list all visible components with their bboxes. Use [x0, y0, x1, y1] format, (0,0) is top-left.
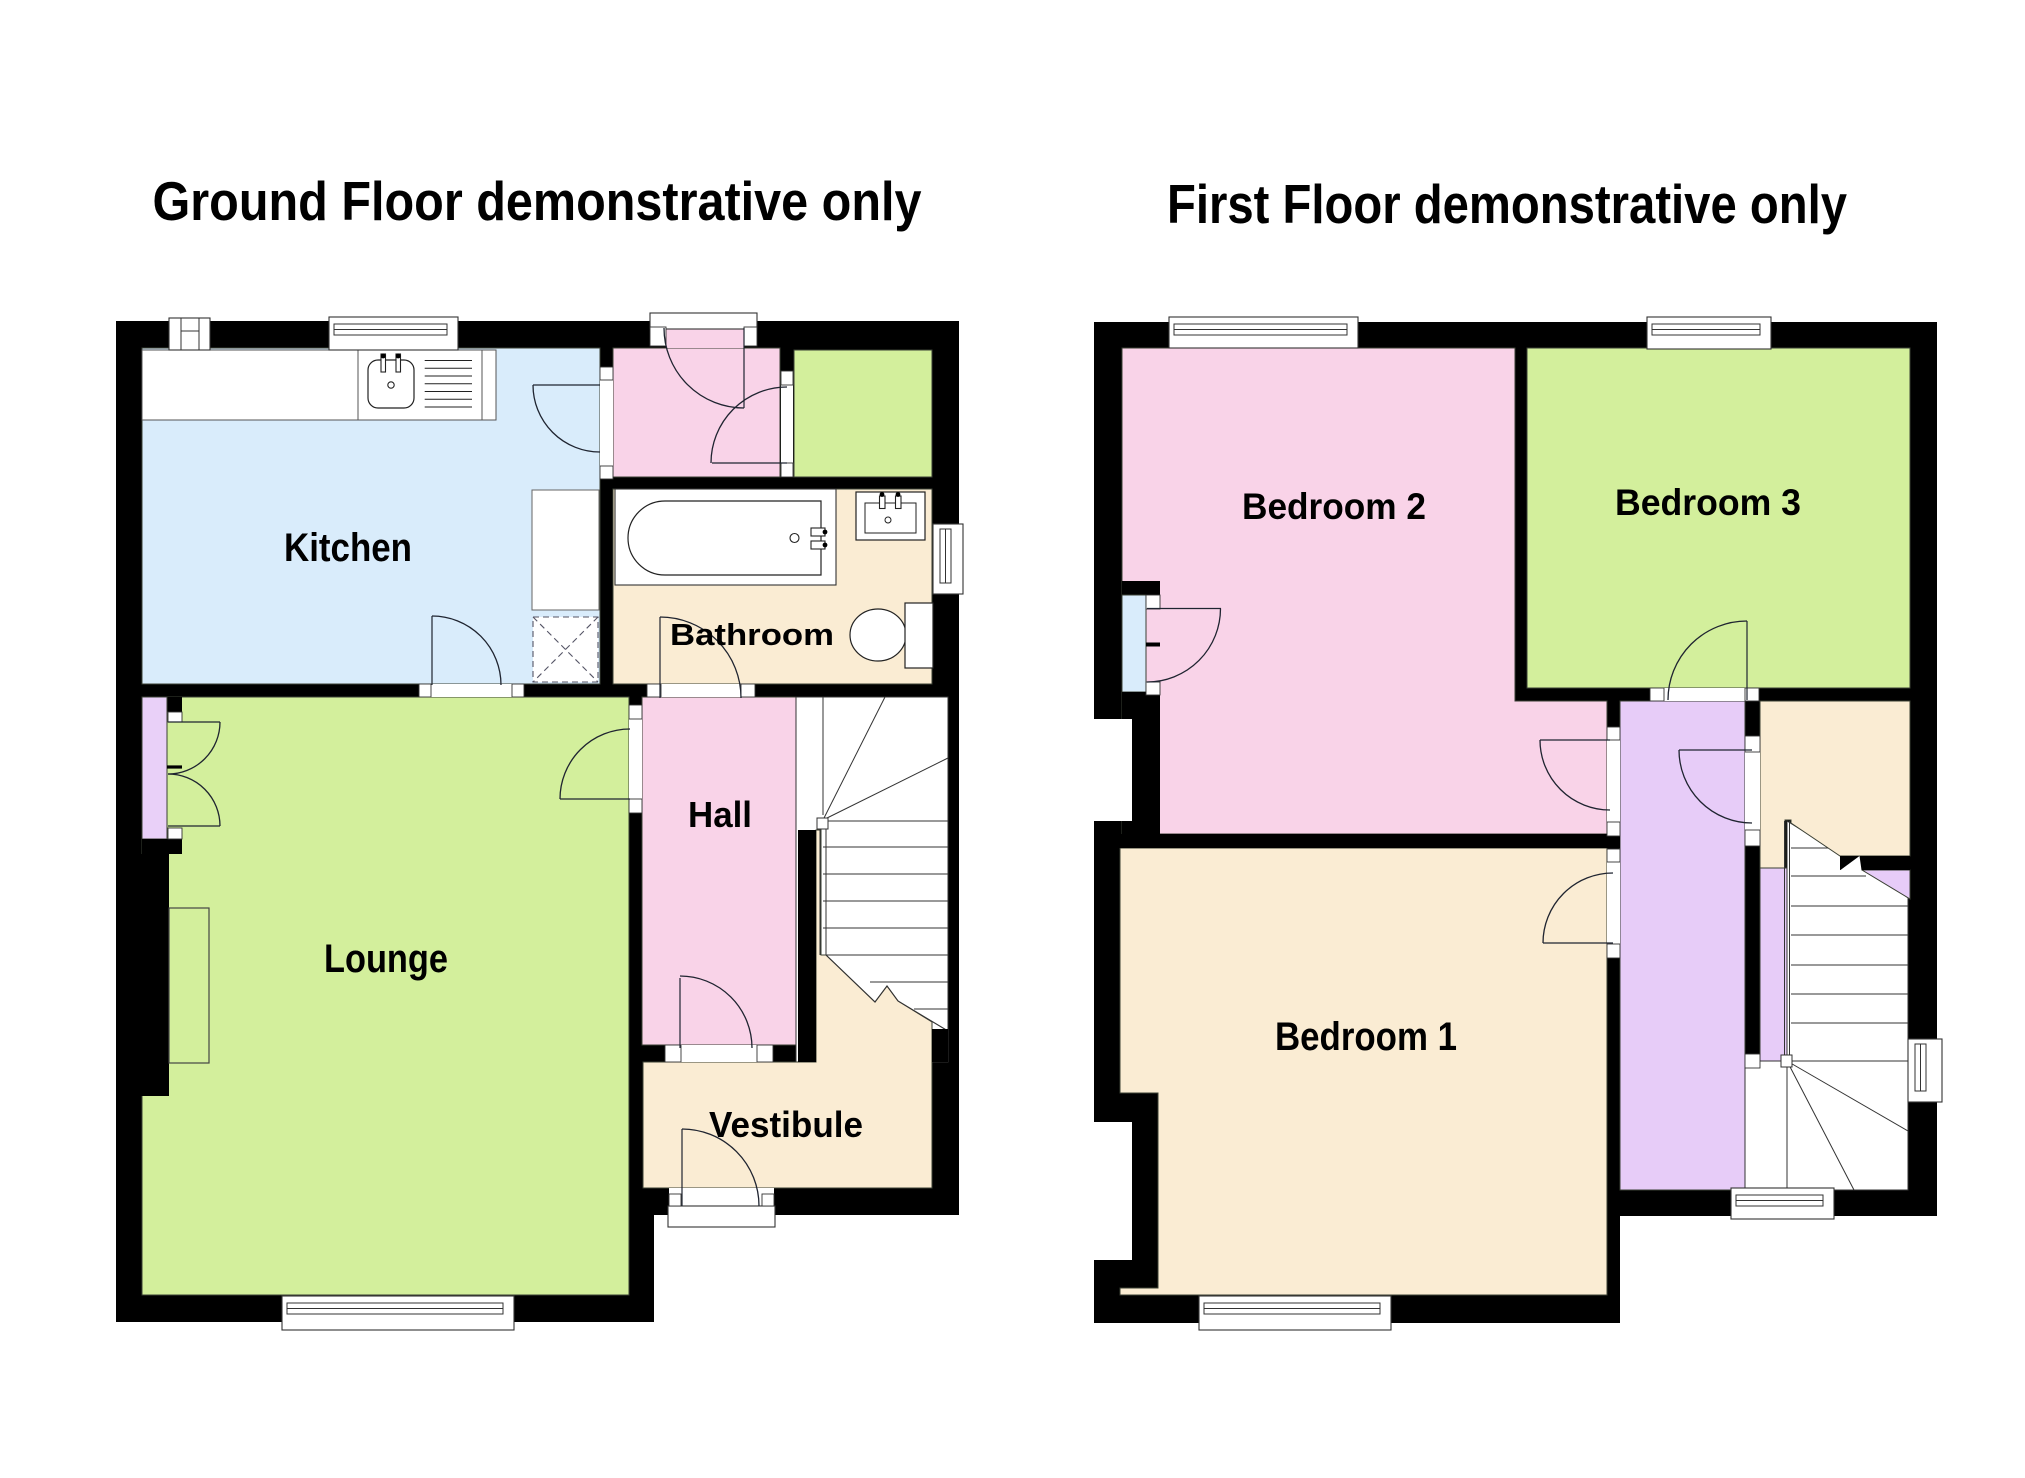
svg-text:Bathroom: Bathroom — [670, 617, 834, 652]
svg-text:Bedroom 2: Bedroom 2 — [1242, 486, 1426, 527]
svg-text:Bedroom 3: Bedroom 3 — [1615, 482, 1801, 523]
svg-text:Bedroom 1: Bedroom 1 — [1275, 1015, 1457, 1059]
svg-text:Ground Floor demonstrative onl: Ground Floor demonstrative only — [153, 170, 922, 232]
svg-text:Kitchen: Kitchen — [284, 526, 412, 570]
svg-text:Lounge: Lounge — [324, 937, 448, 981]
svg-text:Hall: Hall — [688, 794, 752, 835]
svg-text:Vestibule: Vestibule — [709, 1104, 863, 1145]
svg-text:First Floor demonstrative only: First Floor demonstrative only — [1167, 173, 1847, 235]
